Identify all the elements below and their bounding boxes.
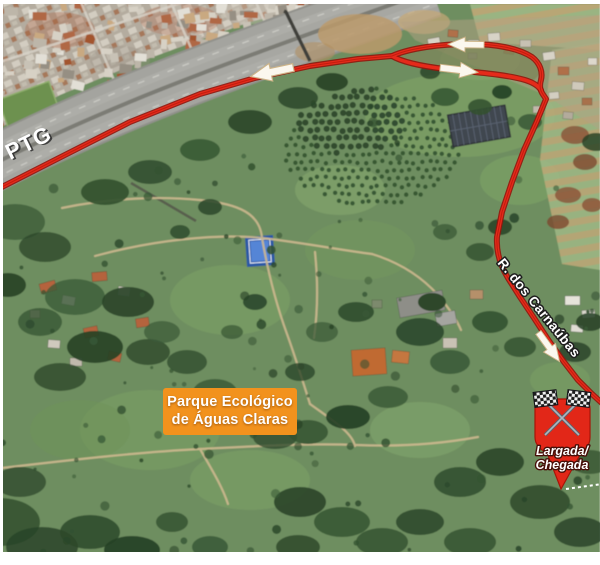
park-label-line2: de Águas Claras: [172, 412, 289, 430]
satellite-map: PTG PTG R. dos Carnaúbas Largada/ Chegad…: [0, 0, 600, 565]
image-border-top: [0, 0, 600, 4]
start-finish-label-line1: Largada/: [536, 444, 590, 458]
park-label: Parque Ecológico de Águas Claras: [163, 388, 297, 435]
park-label-line1: Parque Ecológico: [167, 394, 293, 412]
image-border-left: [0, 0, 3, 565]
image-border-bottom: [0, 552, 600, 565]
map-image: PTG PTG R. dos Carnaúbas Largada/ Chegad…: [0, 0, 600, 565]
start-finish-label-line2: Chegada: [536, 458, 589, 472]
